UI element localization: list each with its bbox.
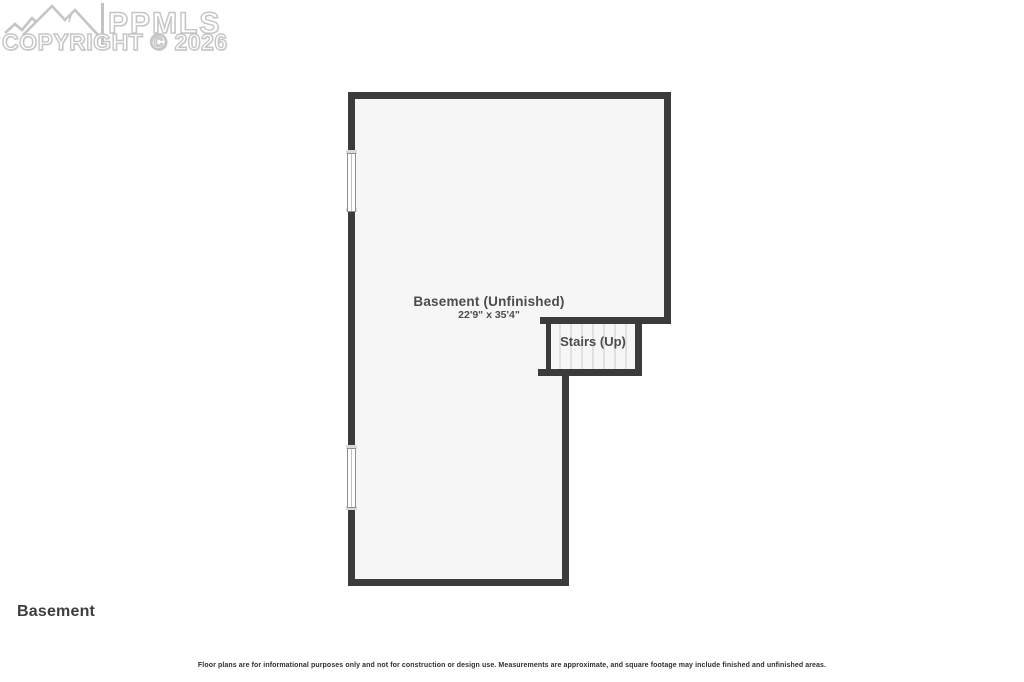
- room-dimensions-label: 22'9" x 35'4": [339, 309, 639, 321]
- stairs-label: Stairs (Up): [541, 334, 645, 349]
- window-upper-icon: [346, 150, 357, 212]
- floor-plan-page: PPMLS COPYRIGHT © 2026: [0, 0, 1024, 682]
- stairs-bottom-wall: [538, 369, 642, 376]
- room-name-label: Basement (Unfinished): [339, 294, 639, 309]
- floor-plan-drawing: [0, 0, 1024, 682]
- window-lower-icon: [346, 445, 357, 510]
- disclaimer-text: Floor plans are for informational purpos…: [0, 662, 1024, 669]
- floor-name-title: Basement: [17, 603, 95, 621]
